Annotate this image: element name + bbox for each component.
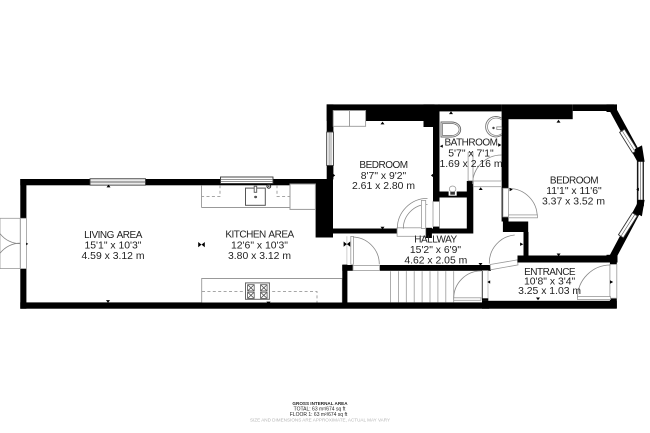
- svg-text:4.59 x 3.12 m: 4.59 x 3.12 m: [82, 251, 145, 262]
- svg-text:12'6" x 10'3": 12'6" x 10'3": [231, 240, 288, 251]
- svg-text:BEDROOM: BEDROOM: [550, 175, 598, 186]
- svg-text:1.69 x 2.16 m: 1.69 x 2.16 m: [440, 159, 503, 170]
- svg-text:15'1" x 10'3": 15'1" x 10'3": [85, 240, 142, 251]
- svg-text:8'7" x 9'2": 8'7" x 9'2": [361, 171, 407, 182]
- svg-text:2.61 x 2.80 m: 2.61 x 2.80 m: [352, 181, 415, 192]
- svg-text:SIZE AND DIMENSIONS ARE APPROX: SIZE AND DIMENSIONS ARE APPROXIMATE, ACT…: [250, 418, 390, 423]
- svg-text:GROSS INTERNAL AREA: GROSS INTERNAL AREA: [292, 401, 348, 406]
- svg-text:4.62 x 2.05 m: 4.62 x 2.05 m: [404, 256, 467, 267]
- svg-text:BEDROOM: BEDROOM: [359, 160, 407, 171]
- svg-text:BATHROOM: BATHROOM: [444, 137, 497, 148]
- svg-text:15'2" x 6'9": 15'2" x 6'9": [410, 245, 462, 256]
- svg-text:LIVING AREA: LIVING AREA: [84, 230, 143, 241]
- svg-text:3.37 x 3.52 m: 3.37 x 3.52 m: [542, 196, 605, 207]
- svg-text:3.25 x 1.03 m: 3.25 x 1.03 m: [518, 286, 581, 297]
- svg-text:3.80 x 3.12 m: 3.80 x 3.12 m: [228, 251, 291, 262]
- svg-text:KITCHEN AREA: KITCHEN AREA: [225, 229, 294, 240]
- svg-text:5'7" x 7'1": 5'7" x 7'1": [448, 148, 494, 159]
